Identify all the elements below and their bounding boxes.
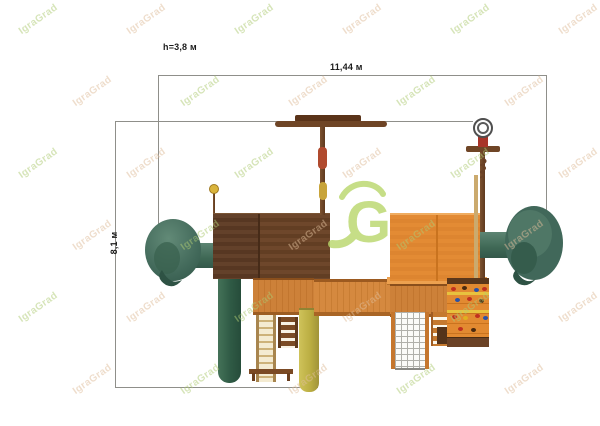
dimension-line-width-top xyxy=(158,75,547,76)
left-slide-opening xyxy=(154,242,180,274)
watermark-text: IgraGrad xyxy=(125,2,168,37)
platform-leg xyxy=(287,373,290,381)
right-tower-roof xyxy=(390,213,484,281)
watermark-text: IgraGrad xyxy=(557,146,600,181)
right-slide-opening xyxy=(511,242,537,274)
roof-seam xyxy=(436,215,438,281)
climbing-hold xyxy=(451,287,456,291)
wall-stripe xyxy=(447,310,489,313)
climbing-hold xyxy=(475,314,480,318)
watermark-text: IgraGrad xyxy=(71,362,114,397)
watermark-text: IgraGrad xyxy=(287,74,330,109)
wall-body xyxy=(447,284,489,337)
watermark-text: IgraGrad xyxy=(341,146,384,181)
climbing-hold xyxy=(474,288,479,292)
wall-stripe xyxy=(447,292,489,295)
climbing-hold xyxy=(471,328,476,332)
height-dimension-label: h=3,8 м xyxy=(163,42,197,52)
watermark-text: IgraGrad xyxy=(179,362,222,397)
roof-highlight xyxy=(260,214,330,279)
dimension-line-bottom xyxy=(115,387,318,388)
t-pole-yellow-sleeve xyxy=(319,182,327,200)
watermark-text: IgraGrad xyxy=(17,2,60,37)
width-dimension-label: 11,44 м xyxy=(330,62,363,72)
wooden-steps xyxy=(278,317,298,348)
basketball-hoop-icon xyxy=(473,118,493,138)
watermark-text: IgraGrad xyxy=(17,146,60,181)
climbing-hold xyxy=(462,286,467,290)
logo-letter: G xyxy=(346,190,391,255)
depth-dimension-label: 8,1 м xyxy=(109,225,119,261)
finial-pole xyxy=(213,192,215,213)
t-pole-crossbar xyxy=(275,121,387,127)
playground-dimension-drawing: h=3,8 м 11,44 м 8,1 м xyxy=(0,0,600,426)
left-tube-slide xyxy=(140,200,220,292)
t-pole xyxy=(320,127,325,215)
watermark-text: IgraGrad xyxy=(503,362,546,397)
watermark-text: IgraGrad xyxy=(71,218,114,253)
straight-slide-yellow xyxy=(299,308,319,392)
left-tower-roof xyxy=(213,213,330,279)
pole-spiral-icon xyxy=(480,157,492,179)
climbing-hold xyxy=(455,298,460,302)
watermark-text: IgraGrad xyxy=(125,146,168,181)
watermark-text: IgraGrad xyxy=(341,2,384,37)
dimension-line-right xyxy=(546,75,547,212)
watermark-text: IgraGrad xyxy=(179,74,222,109)
climbing-hold xyxy=(479,299,484,303)
watermark-text: IgraGrad xyxy=(17,290,60,325)
climbing-hold xyxy=(452,315,457,319)
watermark-text: IgraGrad xyxy=(125,290,168,325)
vertical-tube-green xyxy=(218,279,241,383)
t-pole-red-sleeve xyxy=(318,147,327,169)
watermark-text: IgraGrad xyxy=(557,290,600,325)
finial-ball xyxy=(209,184,219,194)
climbing-hold xyxy=(463,316,468,320)
hoop-hole xyxy=(477,122,489,134)
climbing-hold xyxy=(467,297,472,301)
platform-leg xyxy=(252,373,255,381)
climbing-hold xyxy=(458,327,463,331)
watermark-text: IgraGrad xyxy=(557,2,600,37)
walkway-bridge xyxy=(314,279,392,316)
climbing-hold xyxy=(483,316,488,320)
watermark-text: IgraGrad xyxy=(449,2,492,37)
right-tube-slide xyxy=(480,198,568,290)
watermark-text: IgraGrad xyxy=(395,74,438,109)
wall-bottom-band xyxy=(447,337,489,347)
watermark-text: IgraGrad xyxy=(233,2,276,37)
support-post-tan xyxy=(474,175,478,283)
net-rail xyxy=(425,312,429,369)
watermark-text: IgraGrad xyxy=(503,74,546,109)
watermark-text: IgraGrad xyxy=(71,74,114,109)
watermark-text: IgraGrad xyxy=(233,146,276,181)
climbing-net xyxy=(395,312,425,370)
